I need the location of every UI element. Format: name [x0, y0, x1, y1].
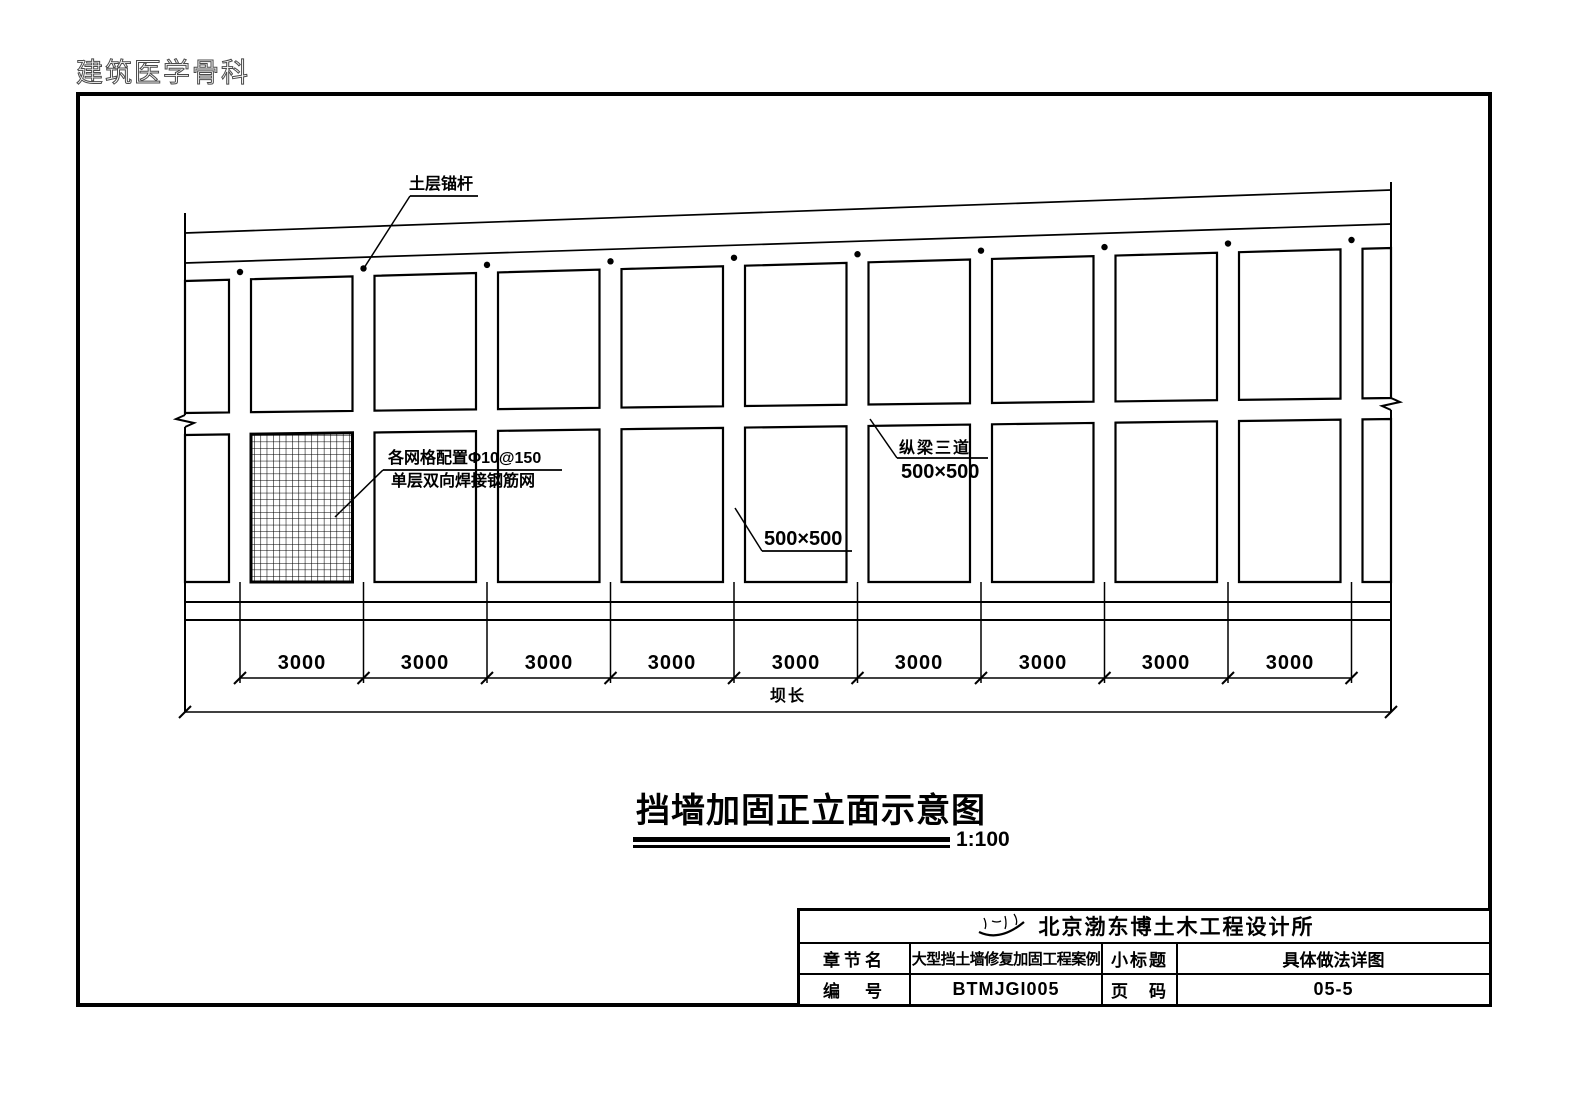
anchor-label: 土层锚杆	[409, 177, 473, 193]
drawing-scale: 1:100	[956, 829, 1010, 850]
title-underline-thick	[633, 837, 950, 842]
panel-size-label: 500×500	[764, 529, 842, 549]
subtitle-value: 具体做法详图	[1178, 944, 1489, 973]
beam-size-label: 500×500	[901, 462, 979, 482]
chapter-label: 章节名	[800, 944, 911, 973]
drawing-title: 挡墙加固正立面示意图	[636, 794, 986, 828]
title-block-company-row: 北京渤东博土木工程设计所	[800, 911, 1489, 942]
page-label: 页 码	[1103, 975, 1178, 1004]
company-name: 北京渤东博土木工程设计所	[1039, 911, 1315, 941]
bay-dimension: 3000	[874, 653, 964, 673]
bay-dimension: 3000	[751, 653, 841, 673]
title-block-row: 章节名 大型挡土墙修复加固工程案例 小标题 具体做法详图	[800, 942, 1489, 973]
mesh-label-line1: 各网格配置Φ10@150	[388, 451, 541, 467]
beam-label: 纵梁三道	[899, 441, 971, 457]
bay-dimension: 3000	[1121, 653, 1211, 673]
bay-dimension: 3000	[380, 653, 470, 673]
subtitle-label: 小标题	[1103, 944, 1178, 973]
bay-dimension: 3000	[257, 653, 347, 673]
number-value: BTMJGI005	[911, 975, 1103, 1004]
total-dim-label: 坝长	[770, 689, 806, 705]
title-block-row: 编 号 BTMJGI005 页 码 05-5	[800, 973, 1489, 1004]
company-signature-logo-icon	[975, 911, 1027, 941]
number-label: 编 号	[800, 975, 911, 1004]
page-value: 05-5	[1178, 975, 1489, 1004]
chapter-value: 大型挡土墙修复加固工程案例	[911, 944, 1103, 973]
title-block: 北京渤东博土木工程设计所 章节名 大型挡土墙修复加固工程案例 小标题 具体做法详…	[797, 908, 1492, 1007]
bay-dimension: 3000	[1245, 653, 1335, 673]
bay-dimension: 3000	[627, 653, 717, 673]
bay-dimension: 3000	[504, 653, 594, 673]
mesh-label-line2: 单层双向焊接钢筋网	[391, 474, 535, 490]
title-underline-thin	[633, 845, 950, 848]
drawing-sheet: 建筑医学骨科 土层锚杆 各网格配置Φ10@150 单层双向焊接钢筋网 纵梁三道 …	[0, 0, 1571, 1098]
bay-dimension: 3000	[998, 653, 1088, 673]
